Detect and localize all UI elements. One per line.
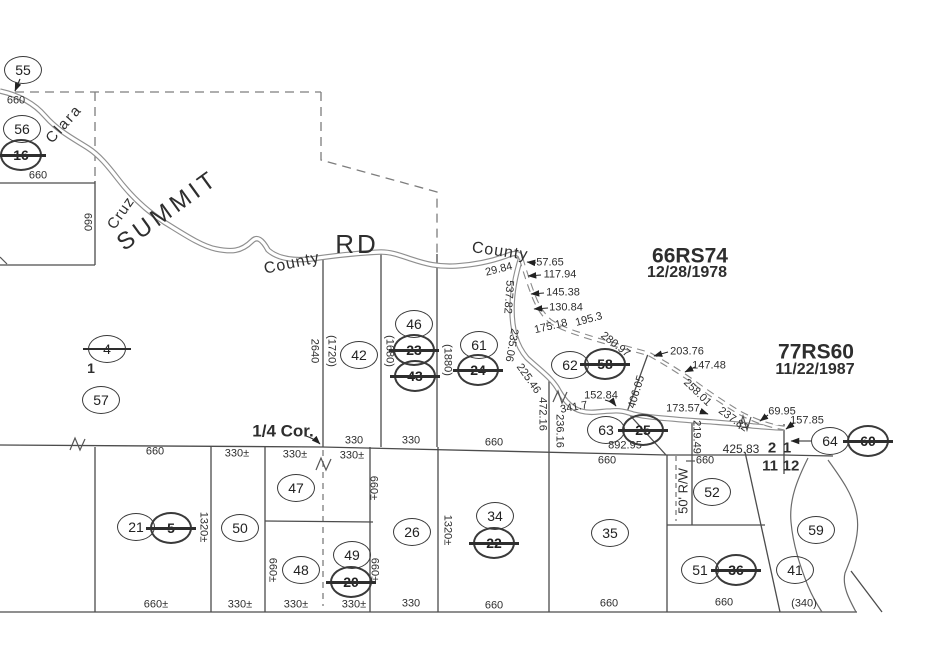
parcel-strikethrough [618,429,668,431]
measurement-label: 147.48 [692,361,726,372]
parcel-number-circle: 22 [473,527,515,559]
parcel-number-circle: 47 [277,474,315,502]
measurement-label: 173.57 [666,404,700,415]
parcel-number: 34 [487,508,503,524]
parcel-number-circle: 35 [591,519,629,547]
parcel-number: 55 [15,62,31,78]
parcel-number: 47 [288,480,304,496]
measurement-label: 117.94 [544,270,577,281]
parcel-number: 46 [406,316,422,332]
parcel-number: 62 [562,357,578,373]
parcel-number: 61 [471,337,487,353]
parcel-number: 42 [351,347,367,363]
measurement-label: 660 [600,599,618,610]
parcel-number-circle: 36 [715,554,757,586]
measurement-label: 472.16 [537,397,548,431]
measurement-label: 50' R/W [677,468,690,514]
measurement-label: 660± [368,476,379,500]
parcel-number-circle: 43 [394,360,436,392]
parcel-number: 49 [344,547,360,563]
parcel-strikethrough [453,369,503,371]
measurement-label: (1720) [326,335,337,367]
parcel-strikethrough [389,349,439,351]
parcel-number-circle: 57 [82,386,120,414]
measurement-label: 660 [598,456,616,467]
survey-reference: 12/28/1978 [647,265,727,281]
parcel-strikethrough [711,569,761,571]
parcel-number-circle: 55 [4,56,42,84]
section-number: 12 [783,459,800,474]
parcel-number: 48 [293,562,309,578]
measurement-label: 330± [228,600,252,611]
parcel-number-circle: 25 [622,414,664,446]
section-number: 11 [762,459,778,474]
linework-svg [0,0,950,650]
measurement-label: 330± [225,449,249,460]
parcel-strikethrough [580,363,630,365]
parcel-number: 21 [128,519,144,535]
plat-map-canvas: ClaraCruzSUMMITCountyRDCounty66RS7412/28… [0,0,950,650]
measurement-label: 660 [485,601,503,612]
measurement-label: 1320± [198,512,209,543]
measurement-label: 660± [267,558,278,582]
quarter-corner-label: 1/4 Cor. [252,423,313,440]
parcel-number-circle: 52 [693,478,731,506]
parcel-number: 64 [822,433,838,449]
parcel-strikethrough [390,375,440,377]
parcel-number: 63 [598,422,614,438]
parcel-number: 50 [232,520,248,536]
parcel-number: 57 [93,392,109,408]
parcel-strikethrough [146,527,196,529]
measurement-label: 537.82 [501,280,514,314]
measurement-label: 330 [402,599,420,610]
parcel-strikethrough [469,542,519,544]
parcel-number-circle: 4 [88,335,126,363]
measurement-label: 330± [342,600,366,611]
measurement-label: 330± [283,450,307,461]
parcel-strikethrough [843,440,893,442]
parcel-number: 51 [692,562,708,578]
measurement-label: 157.85 [790,416,824,427]
parcel-number-circle: 58 [584,348,626,380]
measurement-label: (340) [791,599,817,610]
measurement-label: 660 [146,447,164,458]
measurement-label: 660 [485,438,503,449]
parcel-number: 41 [787,562,803,578]
parcel-number-circle: 34 [476,502,514,530]
survey-traverse-line [521,258,784,428]
measurement-label: 330± [284,600,308,611]
parcel-number-circle: 48 [282,556,320,584]
measurement-label: 660 [696,456,714,467]
measurement-label: 660 [7,96,25,107]
parcel-number-circle: 59 [797,516,835,544]
measurement-label: 330 [345,436,363,447]
measurement-label: 203.76 [670,347,704,358]
survey-reference: 11/22/1987 [775,362,854,378]
parcel-number-circle: 16 [0,139,42,171]
measurement-label: 330 [402,436,420,447]
parcel-number: 59 [808,522,824,538]
survey-reference: 77RS60 [778,342,854,363]
parcel-number-circle: 41 [776,556,814,584]
measurement-label: 425.83 [723,443,760,455]
parcel-strikethrough [0,154,46,156]
measurement-label: 145.38 [546,288,580,299]
measurement-label: 660 [82,213,93,231]
measurement-label: 660± [144,600,168,611]
measurement-label: 57.65 [536,258,564,269]
parcel-number: 56 [14,121,30,137]
parcel-number: 52 [704,484,720,500]
parcel-number: 26 [404,524,420,540]
parcel-number-circle: 50 [221,514,259,542]
measurement-label: 660 [715,598,733,609]
measurement-label: 219.49 [691,420,702,454]
measurement-label: 236.16 [554,414,565,448]
parcel-number-circle: 49 [333,541,371,569]
parcel-number-circle: 24 [457,354,499,386]
parcel-strikethrough [83,348,131,350]
measurement-label: 130.84 [549,303,583,314]
measurement-label: 1320± [442,515,453,546]
parcel-number-circle: 5 [150,512,192,544]
road-name-label: RD [335,231,379,257]
section-number: 1 [783,441,791,456]
lot-number: 1 [87,361,95,375]
parcel-number-circle: 20 [330,566,372,598]
parcel-strikethrough [326,581,376,583]
section-number: 2 [768,441,776,456]
measurement-label: 2640 [309,339,320,363]
parcel-number: 35 [602,525,618,541]
parcel-number-circle: 26 [393,518,431,546]
measurement-label: 152.84 [584,391,618,402]
parcel-number-circle: 60 [847,425,889,457]
measurement-label: 660 [29,171,47,182]
measurement-label: 330± [340,451,364,462]
measurement-label: (1880) [442,344,453,376]
parcel-number-circle: 42 [340,341,378,369]
